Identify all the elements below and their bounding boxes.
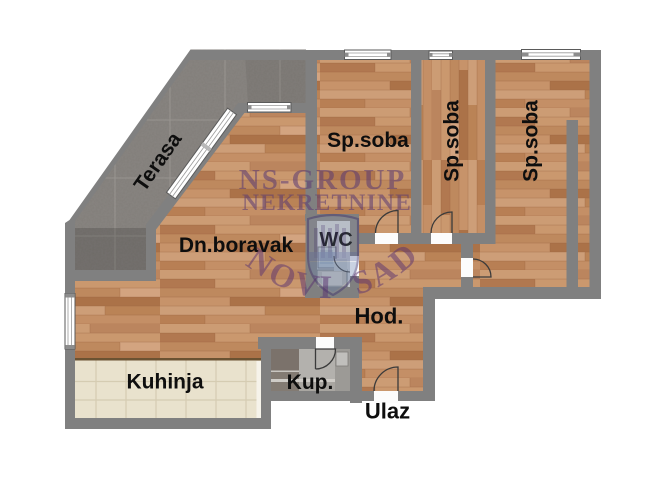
- svg-text:Hod.: Hod.: [355, 304, 404, 329]
- svg-text:Sp.soba: Sp.soba: [441, 100, 464, 182]
- svg-text:Ulaz: Ulaz: [365, 399, 410, 424]
- svg-text:Sp.soba: Sp.soba: [327, 129, 409, 152]
- svg-text:Kup.: Kup.: [287, 371, 334, 394]
- svg-text:Kuhinja: Kuhinja: [127, 371, 204, 394]
- svg-text:NEKRETNINE: NEKRETNINE: [242, 190, 412, 216]
- svg-text:Sp.soba: Sp.soba: [520, 100, 543, 182]
